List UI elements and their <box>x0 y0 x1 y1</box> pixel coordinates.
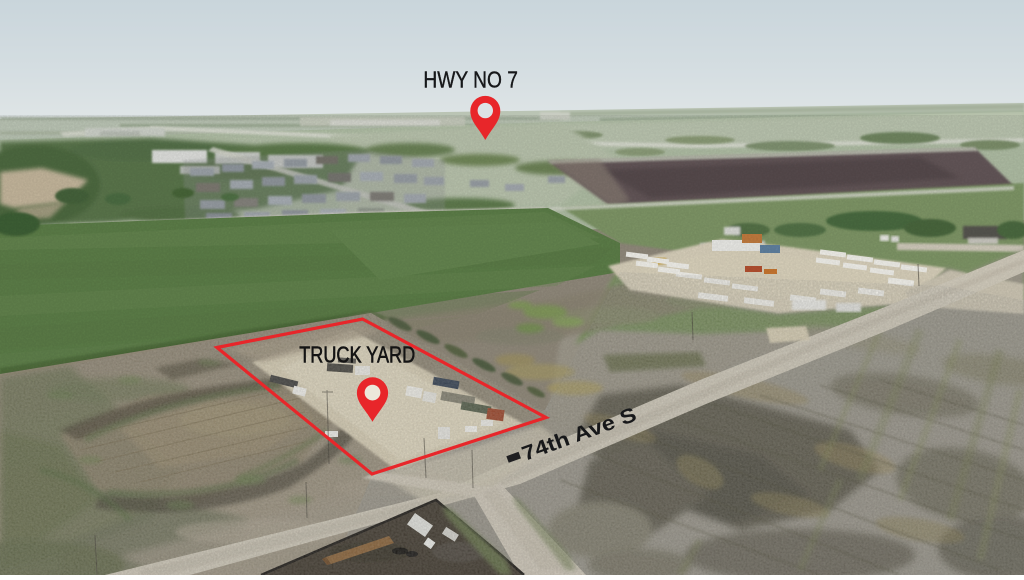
svg-text:HWY NO 7: HWY NO 7 <box>423 67 518 93</box>
svg-text:TRUCK YARD: TRUCK YARD <box>299 341 415 367</box>
